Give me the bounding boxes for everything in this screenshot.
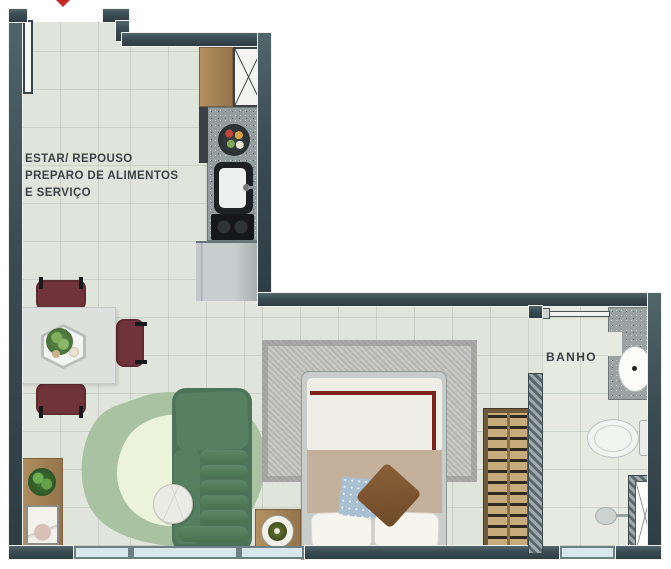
round-coffee-table (153, 484, 193, 524)
sofa-roll-bottom (178, 526, 248, 542)
wardrobe (483, 408, 532, 555)
wall-right (647, 292, 662, 560)
wall-bottom-right (615, 545, 662, 560)
bed-stripe-red-h (310, 391, 436, 395)
wall-bottom-center (304, 545, 560, 560)
room-label-living: ESTAR/ REPOUSO PREPARO DE ALIMENTOS E SE… (25, 151, 200, 202)
floor-drain (595, 507, 617, 525)
wood-counter (199, 47, 233, 107)
tray-dish-icon (52, 350, 60, 358)
floor-plan: ESTAR/ REPOUSO PREPARO DE ALIMENTOS E SE… (0, 0, 671, 569)
sofa-roll (200, 465, 248, 479)
sofa-roll (200, 495, 248, 509)
room-label-living-line1: ESTAR/ REPOUSO (25, 151, 200, 168)
wall-top-left-jamb (8, 8, 28, 23)
dining-chair-top (36, 280, 86, 310)
window-bathroom (560, 546, 615, 559)
window-joint (236, 546, 242, 559)
wall-right-upper-strip (257, 32, 272, 302)
sofa-roll (200, 480, 248, 494)
wall-left (8, 8, 23, 560)
entry-door (23, 20, 33, 94)
room-label-bathroom: BANHO (546, 350, 597, 364)
window-living (74, 546, 304, 559)
room-label-living-line2: PREPARO DE ALIMENTOS (25, 168, 200, 185)
tray-candle-icon (69, 347, 79, 357)
counter-side-panel (199, 107, 208, 163)
room-label-living-line3: E SERVIÇO (25, 185, 200, 202)
dining-chair-right (116, 319, 144, 367)
picture-frame (26, 505, 59, 545)
dining-chair-bottom (36, 383, 86, 415)
kitchen-sink-basin (219, 168, 246, 208)
fruit-bowl (218, 124, 250, 156)
window-joint (128, 546, 134, 559)
wall-bath-partition (528, 373, 543, 554)
wall-bedroom-top (257, 292, 662, 307)
entry-marker (56, 0, 70, 7)
candle-wick (274, 528, 280, 534)
wall-bath-door-jamb (528, 305, 543, 319)
wall-top-kitchen (121, 32, 272, 47)
cooktop (211, 214, 254, 240)
refrigerator (196, 241, 257, 301)
sofa-chaise-cushion (175, 391, 249, 451)
vanity-notch (608, 332, 622, 356)
wall-bottom-left (8, 545, 74, 560)
sink-drain-dot (632, 366, 637, 371)
double-bed (301, 371, 447, 560)
sofa-roll (200, 510, 248, 524)
console-plant-icon (28, 468, 56, 496)
sofa-roll (200, 450, 248, 464)
wardrobe-divider (507, 413, 510, 550)
sliding-door (546, 311, 610, 317)
toilet-seat (594, 425, 632, 452)
sofa (172, 388, 252, 552)
bed-duvet (307, 378, 442, 452)
